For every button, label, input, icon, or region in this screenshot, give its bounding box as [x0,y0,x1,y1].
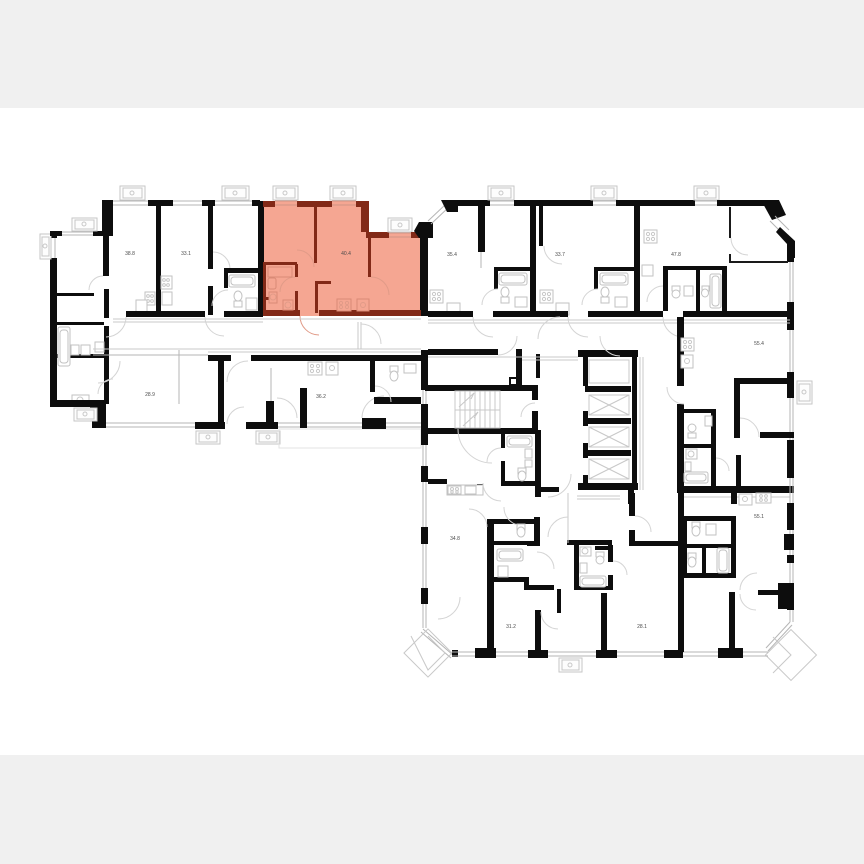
svg-text:55.1: 55.1 [754,514,764,520]
svg-text:33.7: 33.7 [555,252,565,258]
svg-text:33.1: 33.1 [181,251,191,257]
svg-text:38.8: 38.8 [125,251,135,257]
svg-text:34.8: 34.8 [450,536,460,542]
svg-text:40.4: 40.4 [341,251,351,257]
svg-text:35.4: 35.4 [447,252,457,258]
svg-text:28.9: 28.9 [145,392,155,398]
svg-text:47.8: 47.8 [671,252,681,258]
svg-text:28.1: 28.1 [637,624,647,630]
svg-text:31.2: 31.2 [506,624,516,630]
svg-text:55.4: 55.4 [754,341,764,347]
svg-text:36.2: 36.2 [316,394,326,400]
